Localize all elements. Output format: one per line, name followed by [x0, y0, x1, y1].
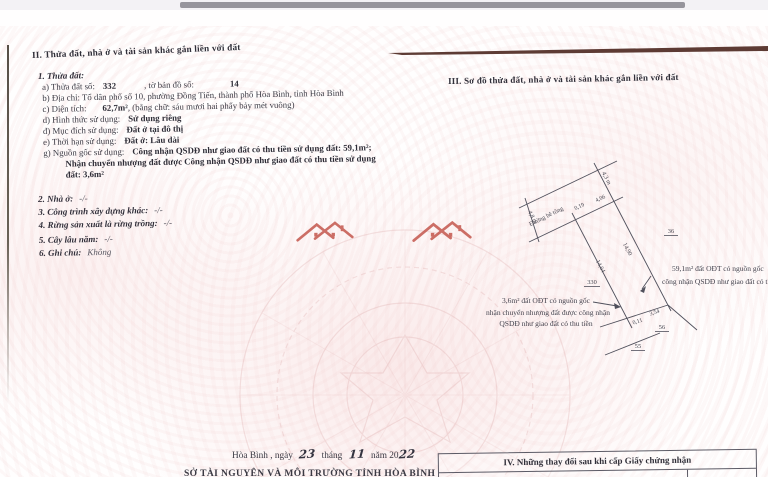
top-edge-seg2-label: 4,06 [595, 194, 607, 204]
left-note-arrowhead [614, 303, 621, 309]
use-form-label: d) Hình thức sử dụng: [43, 114, 121, 125]
scanned-certificate-page: II. Thửa đất, nhà ở và tài sản khác gắn … [0, 0, 768, 477]
item-3-dash: -/- [154, 205, 163, 215]
item-4-dash: -/- [164, 218, 173, 228]
bottom-edge-seg1-label: 0,11 [632, 318, 643, 327]
section-iv-box: IV. Những thay đổi sau khi cấp Giấy chứn… [438, 449, 758, 477]
item-6-value: Không [87, 247, 111, 257]
map-note-left-line2: nhận chuyển nhượng đất được công nhận [486, 307, 606, 319]
item-1-thua-dat: 1. Thửa đất: [38, 70, 84, 81]
month-word: tháng [322, 451, 343, 461]
map-note-left: 3,6m² đất OĐT có nguồn gốc nhận chuyển n… [486, 295, 606, 330]
section-iv-column-divider [687, 470, 688, 477]
neighbor-56-label: 56 [659, 324, 665, 331]
area-value: 62,7m² [102, 102, 128, 112]
item-2-dash: -/- [79, 193, 88, 203]
page-edge-shadow [388, 44, 768, 56]
section-iv-title: IV. Những thay đổi sau khi cấp Giấy chứn… [439, 450, 756, 473]
issuer-name: SỞ TÀI NGUYÊN VÀ MÔI TRƯỜNG TỈNH HÒA BÌN… [184, 469, 435, 477]
use-term-label: e) Thời hạn sử dụng: [43, 136, 116, 147]
map-note-right-line2: công nhận QSDĐ như giao đất có thu tiền [662, 276, 768, 288]
use-purpose-value: Đất ở tại đô thị [126, 124, 183, 135]
book-spine-line [7, 45, 9, 403]
item-3-other-construction: 3. Công trình xây dựng khác:-/- [38, 205, 163, 217]
parcel-number-label: a) Thửa đất số: [42, 81, 95, 92]
use-purpose-label: đ) Mục đích sử dụng: [43, 125, 119, 136]
date-line: Hòa Bình , ngày 23 tháng 11 năm 2022 [232, 447, 415, 461]
handwritten-month: 11 [348, 446, 365, 461]
map-note-left-line1: 3,6m² đất OĐT có nguồn gốc [486, 295, 606, 307]
right-side-length-label: 14,90 [621, 242, 633, 257]
map-note-right-line1: 59,1m² đất OĐT có nguồn gốc [672, 263, 764, 275]
roof-logo-icon [296, 220, 354, 244]
parcel-number-label: 330 [587, 279, 597, 286]
right-note-arrow-line [642, 276, 651, 289]
item-2-house: 2. Nhà ở:-/- [38, 193, 88, 204]
place-and-day-label: Hòa Bình , ngày [232, 451, 293, 461]
handwritten-day: 23 [299, 446, 316, 461]
map-note-left-line3: QSDĐ như giao đất có thu tiền [486, 318, 606, 330]
handwritten-year: 22 [398, 446, 415, 461]
left-side-length-label: 14,64 [594, 259, 606, 274]
neighbor-55-label: 55 [635, 343, 641, 350]
neighbor-line-bottom [605, 333, 660, 355]
section-iii-title: III. Sơ đồ thửa đất, nhà ở và tài sản kh… [448, 72, 679, 86]
use-form-value: Sử dụng riêng [128, 113, 181, 124]
use-origin-label: g) Nguồn gốc sử dụng: [43, 147, 124, 158]
item-4-forest: 4. Rừng sản xuất là rừng trồng:-/- [38, 218, 172, 230]
parcel-right-side [594, 163, 671, 311]
item-5-perennial-trees: 5. Cây lâu năm:-/- [39, 234, 113, 245]
map-sheet-label: , tờ bản đồ số: [144, 79, 194, 90]
neighbor-line-right [668, 305, 697, 330]
item-5-dash: -/- [104, 234, 113, 244]
bottom-edge-seg2-label: 3,54 [649, 309, 661, 318]
year-word: năm 20 [371, 451, 399, 461]
top-edge-seg1-label: 0,19 [574, 202, 586, 212]
parcel-number-value: 332 [103, 81, 116, 91]
scan-top-bar [180, 2, 685, 8]
area-label: c) Diện tích: [42, 103, 86, 114]
roof-logo-icon [412, 220, 472, 244]
row-use-origin-3: đất: 3,6m² [66, 169, 104, 180]
use-term-value: Đất ở: Lâu dài [124, 135, 179, 146]
use-origin-value-3: đất: 3,6m² [66, 169, 104, 180]
section-ii-title: II. Thửa đất, nhà ở và tài sản khác gắn … [32, 42, 241, 60]
item-6-notes: 6. Ghi chú:Không [39, 247, 111, 258]
map-sheet-value: 14 [230, 79, 239, 89]
area-in-words: , (bằng chữ: sáu mươi hai phẩy bảy mét v… [128, 100, 295, 113]
neighbor-36-label: 36 [668, 228, 674, 235]
